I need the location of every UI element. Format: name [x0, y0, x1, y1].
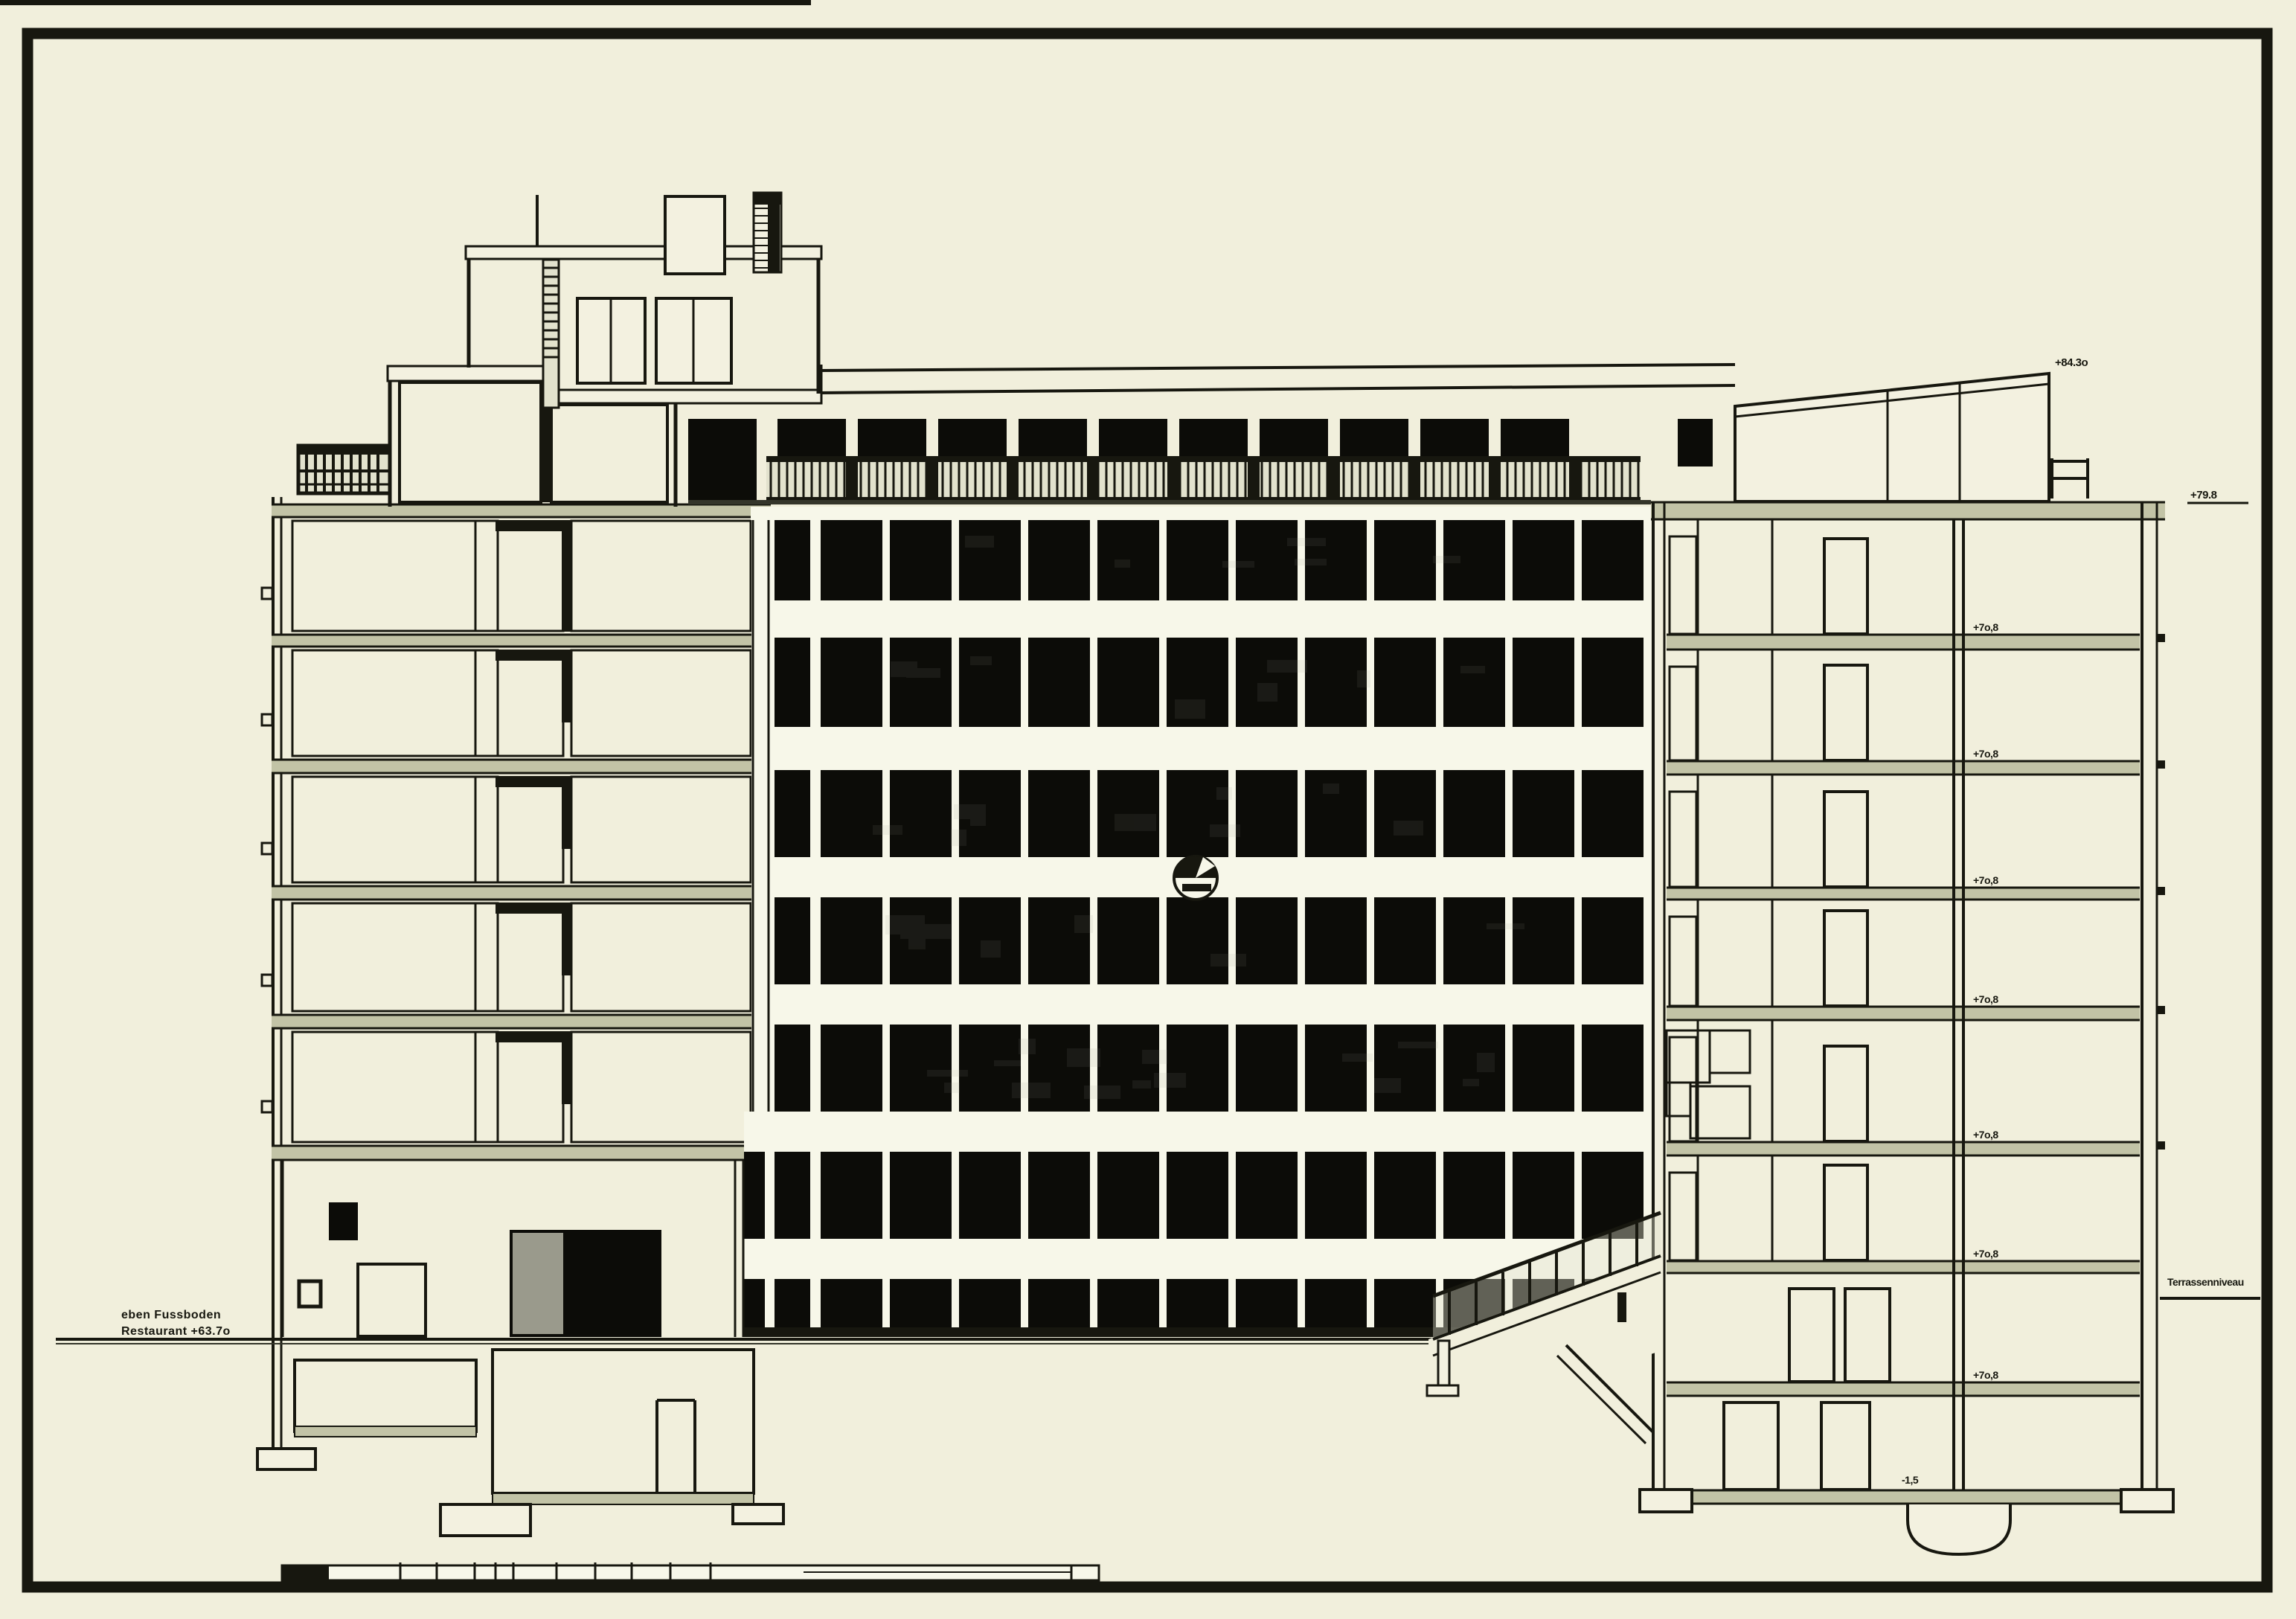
- svg-text:+7o,8: +7o,8: [1973, 621, 1998, 633]
- svg-text:Restaurant +63.7o: Restaurant +63.7o: [121, 1325, 231, 1338]
- svg-text:eben Fussboden: eben Fussboden: [121, 1309, 221, 1321]
- svg-text:+7o,8: +7o,8: [1973, 1369, 1998, 1381]
- svg-text:+7o,8: +7o,8: [1973, 874, 1998, 886]
- svg-text:+79.8: +79.8: [2190, 489, 2217, 501]
- svg-text:+84.3o: +84.3o: [2055, 356, 2088, 369]
- svg-text:-1,5: -1,5: [1902, 1474, 1919, 1486]
- svg-text:Terrassenniveau: Terrassenniveau: [2167, 1276, 2244, 1288]
- svg-text:+7o,8: +7o,8: [1973, 748, 1998, 760]
- svg-text:+7o,8: +7o,8: [1973, 993, 1998, 1005]
- svg-text:+7o,8: +7o,8: [1973, 1248, 1998, 1260]
- svg-text:+7o,8: +7o,8: [1973, 1129, 1998, 1141]
